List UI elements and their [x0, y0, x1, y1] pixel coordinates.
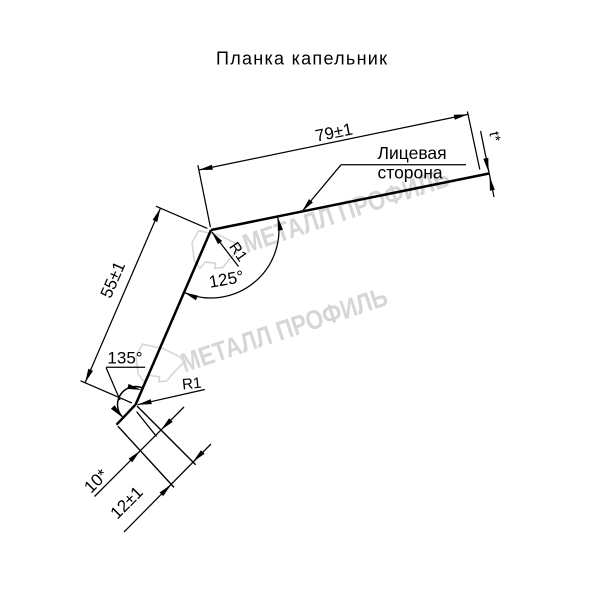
svg-text:R1: R1	[181, 375, 202, 394]
svg-text:Лицевая: Лицевая	[378, 143, 447, 163]
svg-text:135°: 135°	[107, 348, 142, 367]
svg-text:Планка капельник: Планка капельник	[216, 49, 387, 69]
svg-text:сторона: сторона	[378, 162, 443, 182]
